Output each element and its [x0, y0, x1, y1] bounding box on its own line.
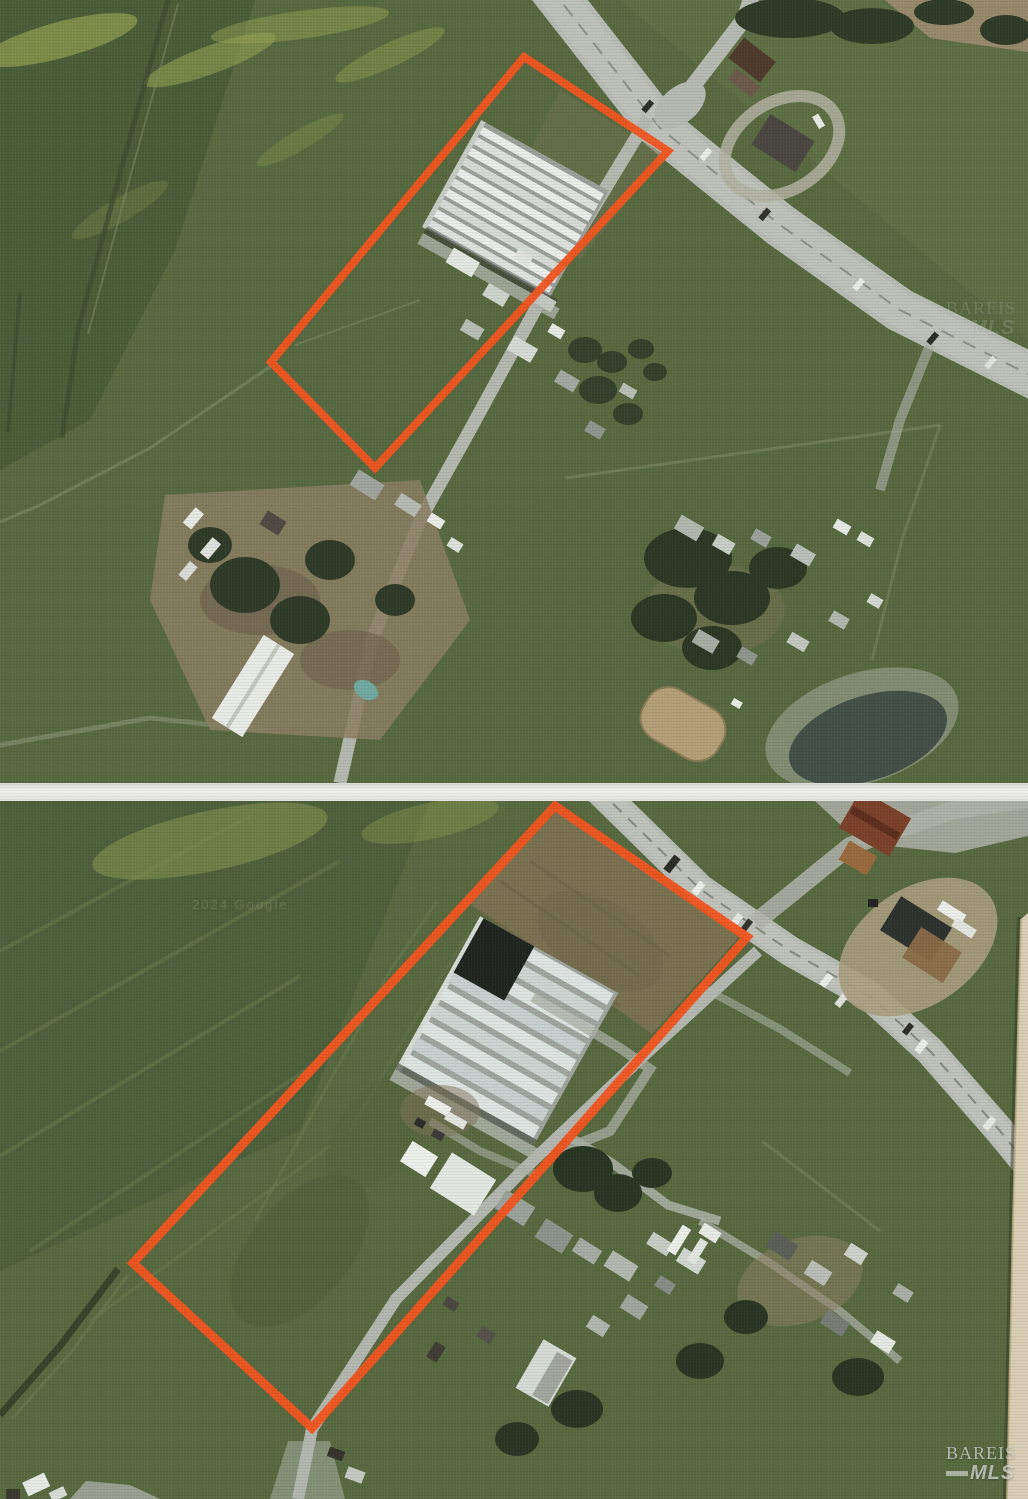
- screenshot-stage: BAREIS MLS BAREIS MLS 2024 Google: [0, 0, 1028, 1499]
- watermark-mls-text: MLS: [970, 1463, 1015, 1483]
- photo-divider: [0, 783, 1028, 801]
- aerial-scene-top: [0, 0, 1028, 783]
- aerial-photo-bottom: [0, 801, 1028, 1499]
- watermark-brand-text: BAREIS: [946, 1444, 1016, 1462]
- watermark-brand-text: BAREIS: [946, 299, 1016, 317]
- aerial-photo-top: [0, 0, 1028, 783]
- watermark-bar: [946, 326, 968, 331]
- watermark-bar: [946, 1471, 968, 1476]
- watermark-mls-text: MLS: [970, 318, 1015, 338]
- aerial-scene-bottom: [0, 801, 1028, 1499]
- bareis-mls-watermark-top: BAREIS MLS: [946, 299, 1016, 338]
- map-attribution-watermark: 2024 Google: [192, 897, 288, 912]
- bareis-mls-watermark-bottom: BAREIS MLS: [946, 1444, 1016, 1483]
